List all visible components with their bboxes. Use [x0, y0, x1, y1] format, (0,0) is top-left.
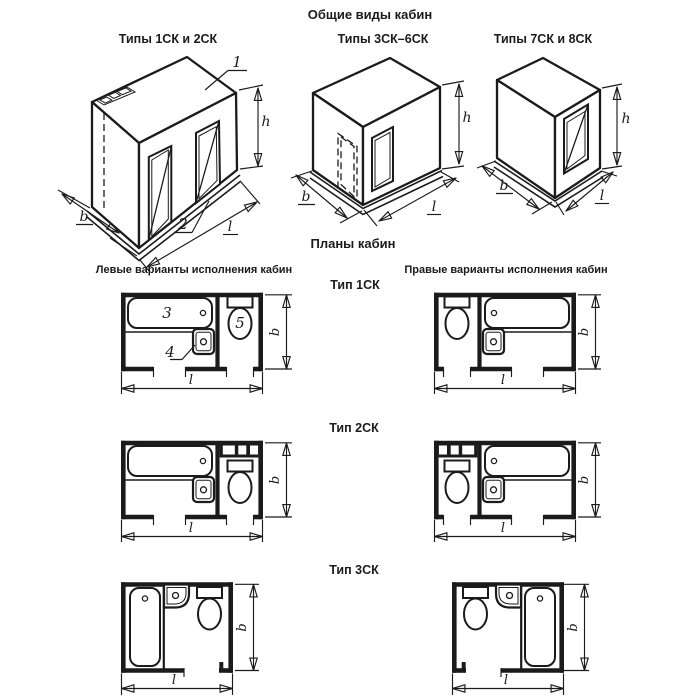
dim-label-b: b — [235, 623, 250, 631]
plan-3sk-right: b l — [452, 582, 589, 695]
drawing-page: Общие виды кабин Типы 1СК и 2СК 1 2 — [0, 0, 700, 700]
extension-line — [240, 166, 263, 169]
dim-l: l — [435, 372, 576, 394]
cabin-plan — [121, 441, 263, 525]
plan-1sk-right: b l — [434, 293, 601, 394]
dim-b: b — [265, 443, 292, 517]
iso-view-7sk-8sk: Типы 7СК и 8СК h b l — [477, 32, 631, 215]
extension-line — [442, 166, 464, 169]
row-label-1sk: Тип 1СК — [330, 278, 380, 292]
callout-bathtub: 3 — [162, 304, 172, 322]
dim-label-l: l — [600, 188, 604, 204]
dim-b: b — [577, 295, 601, 369]
dim-h: h — [442, 81, 472, 169]
callout-label: 2 — [177, 215, 188, 233]
callout-toilet: 5 — [235, 314, 245, 332]
dim-label-l: l — [501, 521, 505, 536]
plan-1sk-left: 3 4 5 b l — [121, 293, 292, 394]
extension-line — [441, 172, 459, 182]
dim-label-h: h — [261, 114, 270, 130]
extension-line — [340, 211, 362, 223]
extension-line — [364, 210, 377, 226]
section-title: Планы кабин — [310, 236, 395, 251]
dim-label-l: l — [501, 373, 505, 388]
right-variants-header: Правые варианты исполнения кабин — [404, 264, 607, 276]
dim-label-b: b — [268, 476, 283, 484]
callout-label: 1 — [232, 53, 242, 71]
iso-view-3sk-6sk: Типы 3СК–6СК h b l — [291, 32, 472, 226]
extension-line — [532, 202, 552, 214]
dim-label-l: l — [189, 373, 193, 388]
dim-h: h — [239, 85, 271, 169]
cabin-plan-mirrored — [452, 582, 564, 677]
callout-washbasin: 4 — [164, 343, 175, 361]
dim-h: h — [602, 84, 631, 169]
plan-3sk-left: b l — [121, 582, 259, 695]
dim-label-b: b — [302, 189, 311, 205]
extension-line — [58, 190, 90, 208]
dim-label-b: b — [577, 476, 592, 484]
cabin-plan — [121, 293, 263, 377]
extension-line — [241, 182, 260, 204]
dim-l: l — [122, 520, 263, 542]
dim-label-b: b — [268, 328, 283, 336]
extension-line — [442, 81, 464, 85]
extension-line — [239, 85, 263, 90]
dim-label-l: l — [189, 521, 193, 536]
extension-line — [291, 171, 312, 178]
cabin-plan-mirrored — [434, 293, 576, 377]
dim-label-l: l — [504, 673, 508, 688]
cabin-plan — [121, 582, 233, 677]
iso-view-1sk-2sk: Типы 1СК и 2СК 1 2 — [58, 32, 271, 271]
dim-label-b: b — [500, 178, 509, 194]
left-variants-header: Левые варианты исполнения кабин — [96, 264, 292, 276]
dim-label-b: b — [577, 328, 592, 336]
dim-b: b — [577, 443, 601, 517]
plans-section: Планы кабин Левые варианты исполнения ка… — [96, 236, 608, 695]
dim-label-b: b — [566, 623, 581, 631]
general-views-section: Общие виды кабин Типы 1СК и 2СК 1 2 — [58, 7, 631, 271]
iso-view-title: Типы 1СК и 2СК — [119, 32, 218, 46]
dim-l: l — [122, 372, 263, 394]
plan-2sk-left: b l — [121, 441, 292, 542]
dim-label-l: l — [228, 219, 232, 235]
dim-l: l — [453, 673, 564, 695]
dim-label-b: b — [80, 209, 89, 225]
row-label-2sk: Тип 2СК — [329, 421, 379, 435]
dim-b: b — [235, 584, 259, 670]
dim-label-h: h — [621, 111, 630, 127]
dim-label-l: l — [432, 199, 436, 215]
dim-b: b — [265, 295, 292, 369]
iso-view-title: Типы 7СК и 8СК — [494, 32, 593, 46]
dim-label-h: h — [462, 110, 471, 126]
diagram-canvas: Общие виды кабин Типы 1СК и 2СК 1 2 — [0, 0, 700, 700]
cabin-plan-mirrored — [434, 441, 576, 525]
plan-2sk-right: b l — [434, 441, 601, 542]
dim-l: l — [122, 673, 233, 695]
iso-view-title: Типы 3СК–6СК — [338, 32, 429, 46]
dim-b: b — [562, 584, 589, 670]
row-label-3sk: Тип 3СК — [329, 563, 379, 577]
section-title: Общие виды кабин — [308, 7, 433, 22]
extension-line — [477, 161, 496, 168]
dim-label-l: l — [172, 673, 176, 688]
extension-line — [602, 166, 622, 169]
extension-line — [602, 84, 622, 88]
dim-l: l — [435, 520, 576, 542]
